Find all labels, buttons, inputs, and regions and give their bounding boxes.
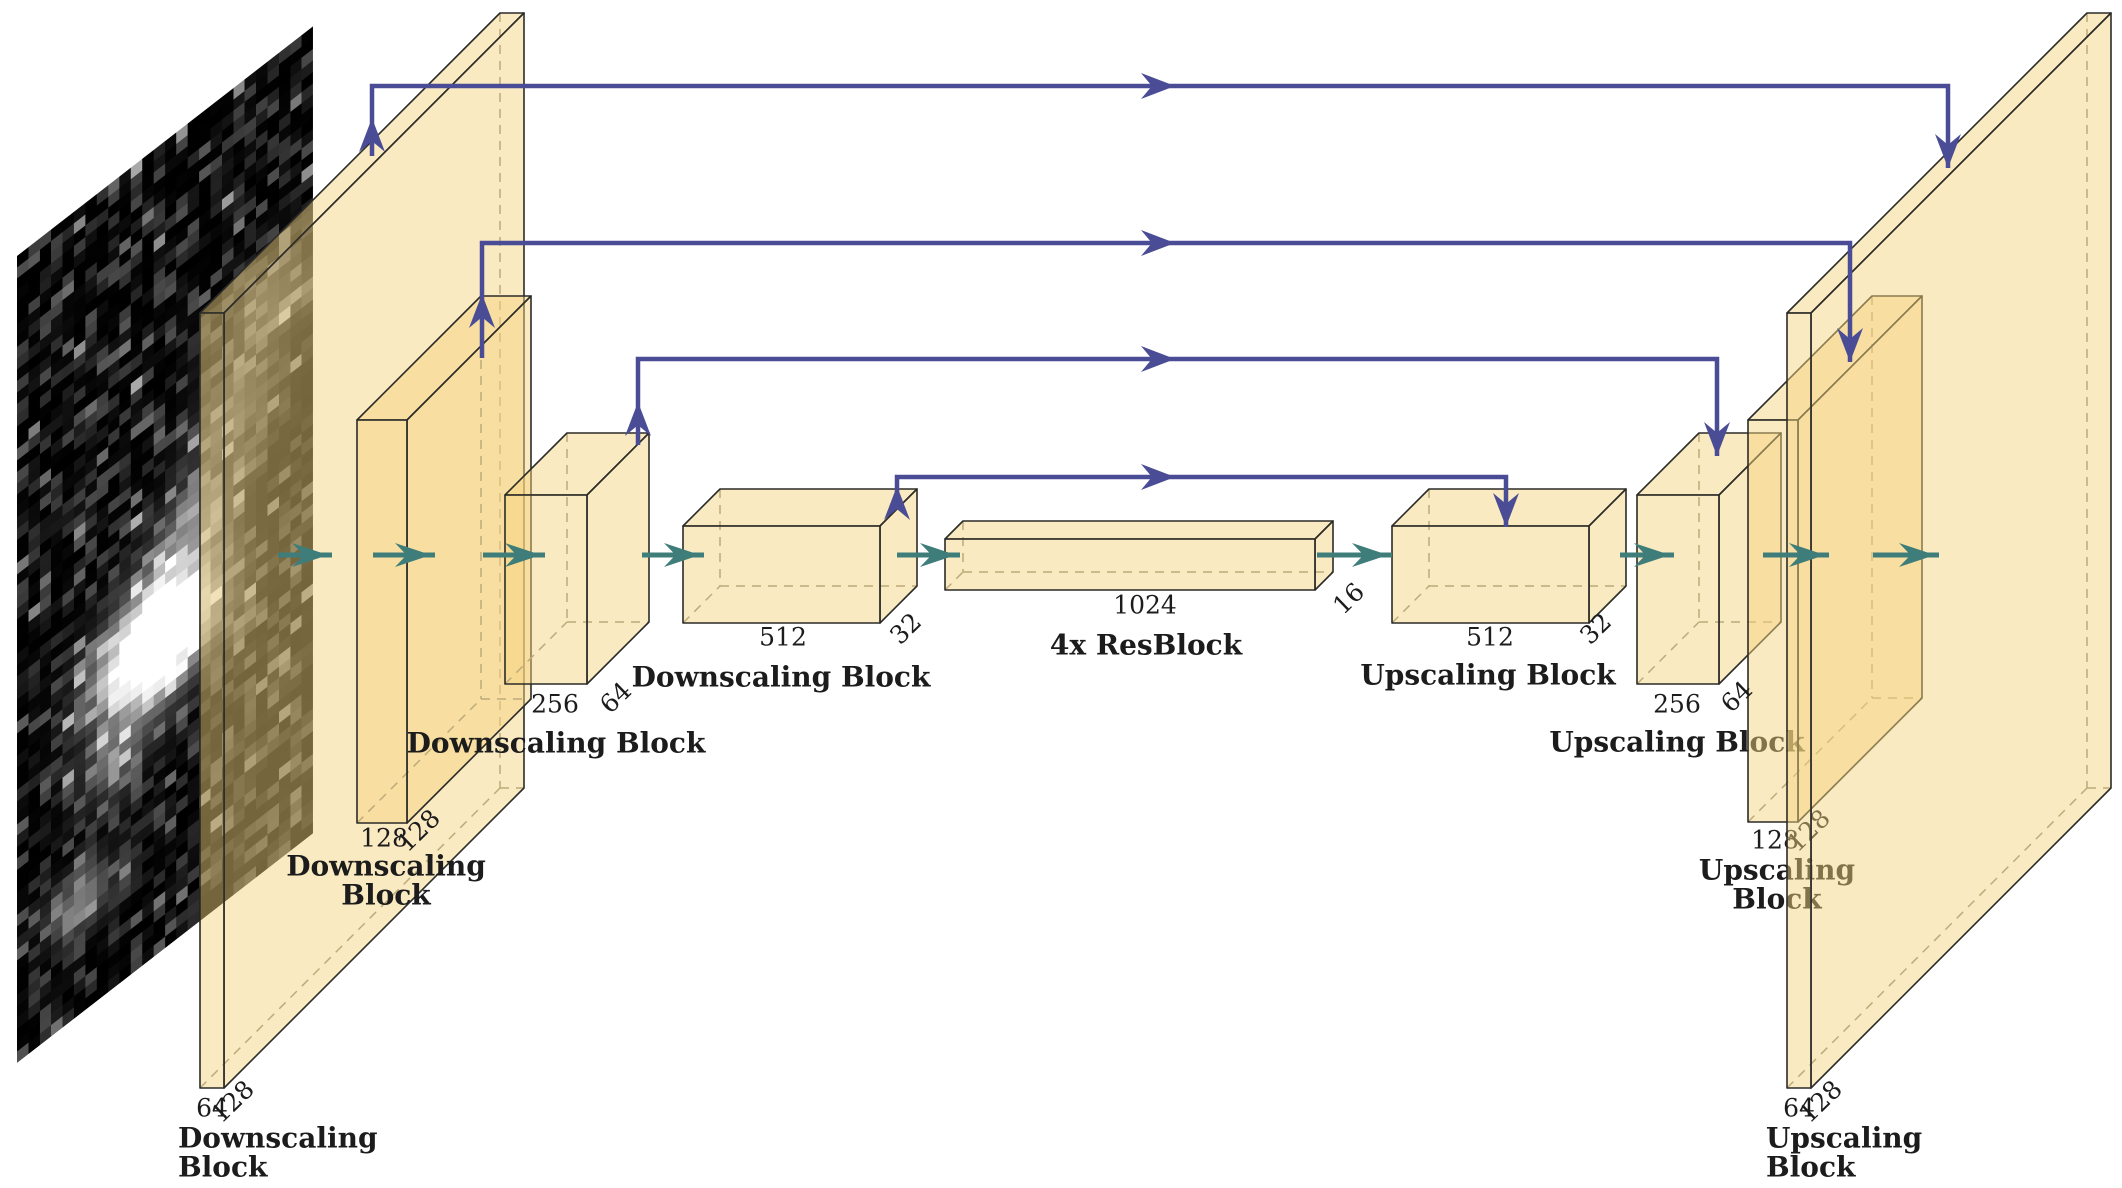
diagram-canvas: Upscaling Block128128UpscalingBlock64128… xyxy=(0,0,2122,1188)
skip-connection-1 xyxy=(359,73,1961,168)
dimension-label: 512 xyxy=(1466,623,1514,652)
block-caption: Downscaling Block xyxy=(632,661,931,694)
dimension-label: 256 xyxy=(531,690,579,719)
block-caption: Block xyxy=(341,879,431,912)
upscale-block-4-output xyxy=(1787,13,2111,1088)
skip-connection-3 xyxy=(625,346,1730,456)
block-caption: Downscaling Block xyxy=(407,727,706,760)
block-caption: Block xyxy=(178,1151,268,1184)
dimension-label: 256 xyxy=(1653,690,1701,719)
block-caption: 4x ResBlock xyxy=(1050,629,1243,662)
downscale-block-4-output xyxy=(683,489,917,623)
dimension-label: 512 xyxy=(759,623,807,652)
dimension-label: 1024 xyxy=(1113,591,1177,620)
unet-architecture-diagram: Upscaling Block128128UpscalingBlock64128… xyxy=(0,0,2122,1188)
block-caption: Upscaling Block xyxy=(1360,659,1616,692)
dimension-label: 16 xyxy=(1327,577,1370,620)
bottleneck-output xyxy=(945,521,1333,590)
skip-connection-2 xyxy=(469,230,1863,362)
block-caption: Block xyxy=(1766,1151,1856,1184)
